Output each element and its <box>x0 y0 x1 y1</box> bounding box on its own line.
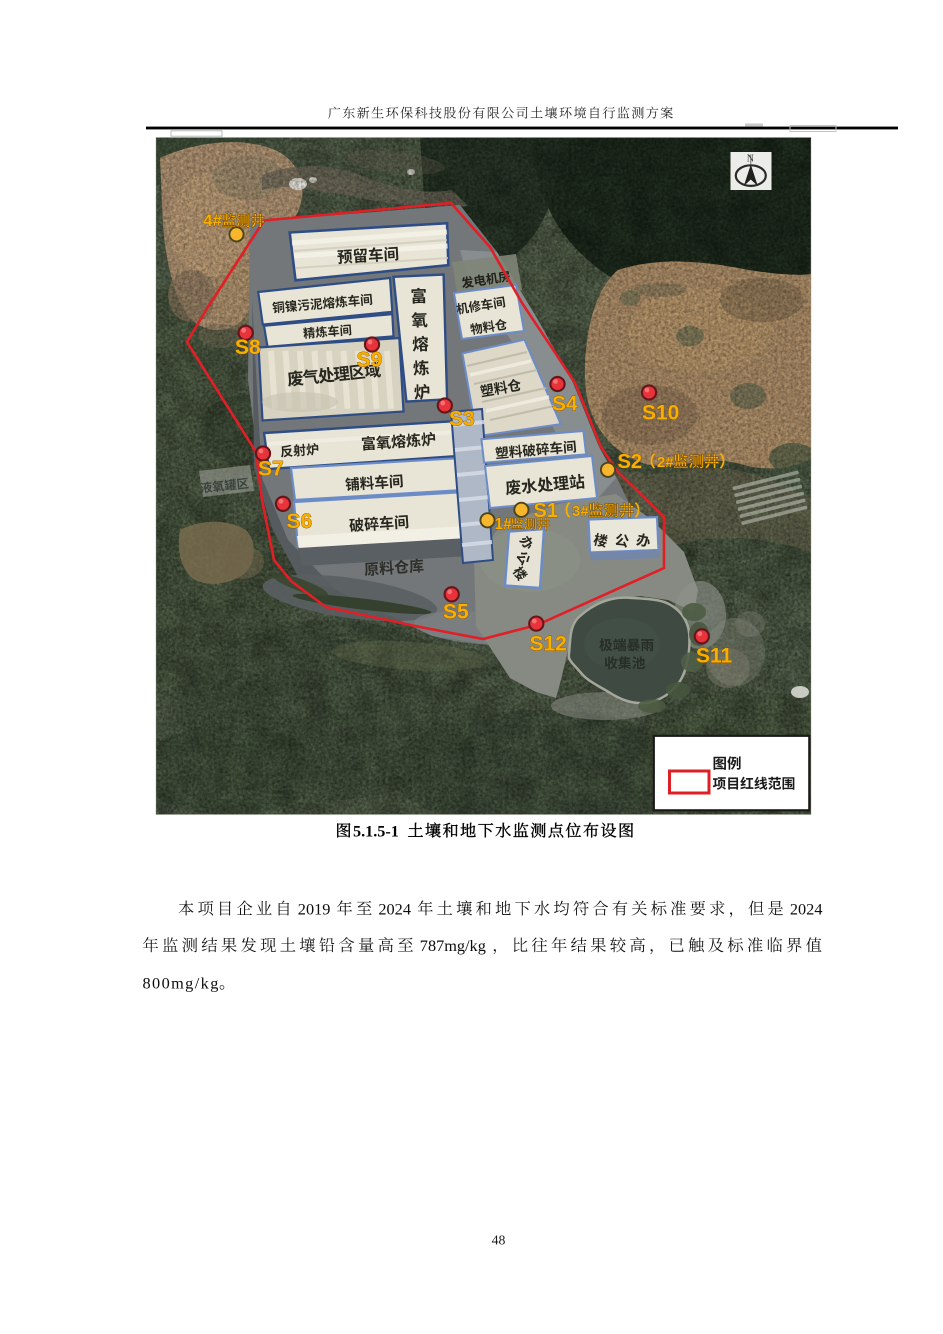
svg-text:S6: S6 <box>287 510 313 533</box>
svg-text:S11: S11 <box>696 645 733 668</box>
svg-text:S1: S1 <box>534 500 558 522</box>
svg-text:2024: 2024 <box>790 899 823 918</box>
svg-text:S3: S3 <box>449 408 475 431</box>
svg-text:3#: 3# <box>572 503 589 520</box>
svg-text:S8: S8 <box>235 336 261 359</box>
svg-text:787mg/kg: 787mg/kg <box>420 936 486 955</box>
svg-text:S5: S5 <box>443 601 469 624</box>
svg-text:S10: S10 <box>642 402 679 425</box>
svg-text:2#: 2# <box>657 454 674 471</box>
svg-text:2019: 2019 <box>298 899 331 918</box>
svg-text:5.1.5-1: 5.1.5-1 <box>353 822 399 840</box>
svg-text:4#: 4# <box>203 211 222 230</box>
svg-text:S12: S12 <box>530 633 567 656</box>
svg-text:S7: S7 <box>258 458 284 481</box>
svg-text:S2: S2 <box>618 451 642 473</box>
svg-text:S4: S4 <box>552 393 578 416</box>
svg-text:2024: 2024 <box>378 899 411 918</box>
svg-text:48: 48 <box>492 1233 506 1248</box>
svg-text:1#: 1# <box>495 516 513 533</box>
svg-text:800mg/kg: 800mg/kg <box>143 973 220 992</box>
svg-text:S9: S9 <box>357 349 383 372</box>
